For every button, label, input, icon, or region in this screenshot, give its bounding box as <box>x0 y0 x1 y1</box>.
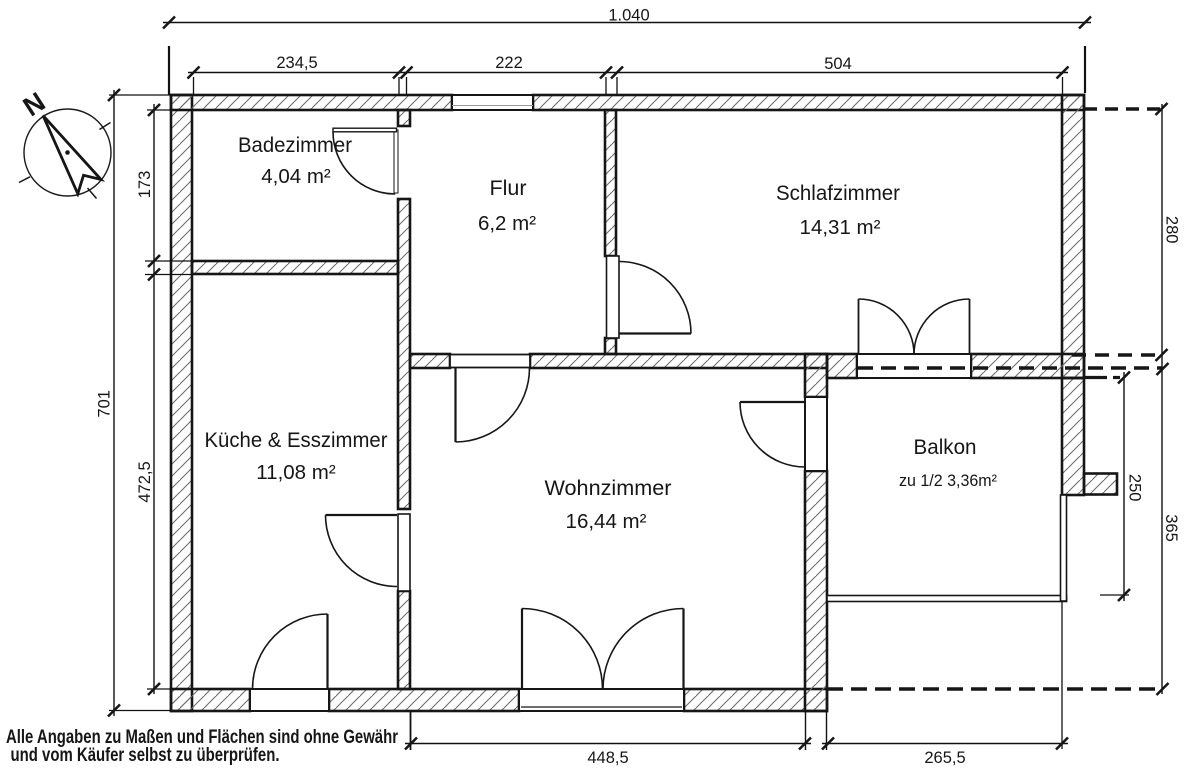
svg-text:4,04 m²: 4,04 m² <box>261 165 331 188</box>
svg-text:472,5: 472,5 <box>136 461 154 502</box>
svg-text:16,44 m²: 16,44 m² <box>566 510 647 533</box>
svg-text:und vom Käufer selbst zu überp: und vom Käufer selbst zu überprüfen. <box>11 745 280 766</box>
svg-text:Schlafzimmer: Schlafzimmer <box>776 181 900 205</box>
svg-text:Badezimmer: Badezimmer <box>238 133 352 157</box>
svg-text:265,5: 265,5 <box>924 749 965 767</box>
svg-text:280: 280 <box>1163 216 1181 244</box>
svg-text:6,2 m²: 6,2 m² <box>478 212 536 235</box>
svg-text:Flur: Flur <box>489 176 526 200</box>
svg-text:Küche & Esszimmer: Küche & Esszimmer <box>205 428 388 452</box>
svg-text:448,5: 448,5 <box>587 749 628 767</box>
svg-text:Balkon: Balkon <box>914 435 977 459</box>
svg-text:173: 173 <box>136 171 154 199</box>
svg-text:222: 222 <box>495 54 523 72</box>
svg-text:701: 701 <box>96 390 114 418</box>
svg-text:250: 250 <box>1126 474 1144 502</box>
svg-text:14,31 m²: 14,31 m² <box>800 216 881 239</box>
svg-text:Wohnzimmer: Wohnzimmer <box>545 476 672 500</box>
svg-text:zu 1/2 3,36m²: zu 1/2 3,36m² <box>899 471 997 490</box>
svg-text:11,08 m²: 11,08 m² <box>256 461 336 484</box>
svg-text:1.040: 1.040 <box>608 7 649 25</box>
svg-text:504: 504 <box>824 55 852 73</box>
svg-text:234,5: 234,5 <box>276 54 317 72</box>
svg-text:365: 365 <box>1162 514 1180 542</box>
